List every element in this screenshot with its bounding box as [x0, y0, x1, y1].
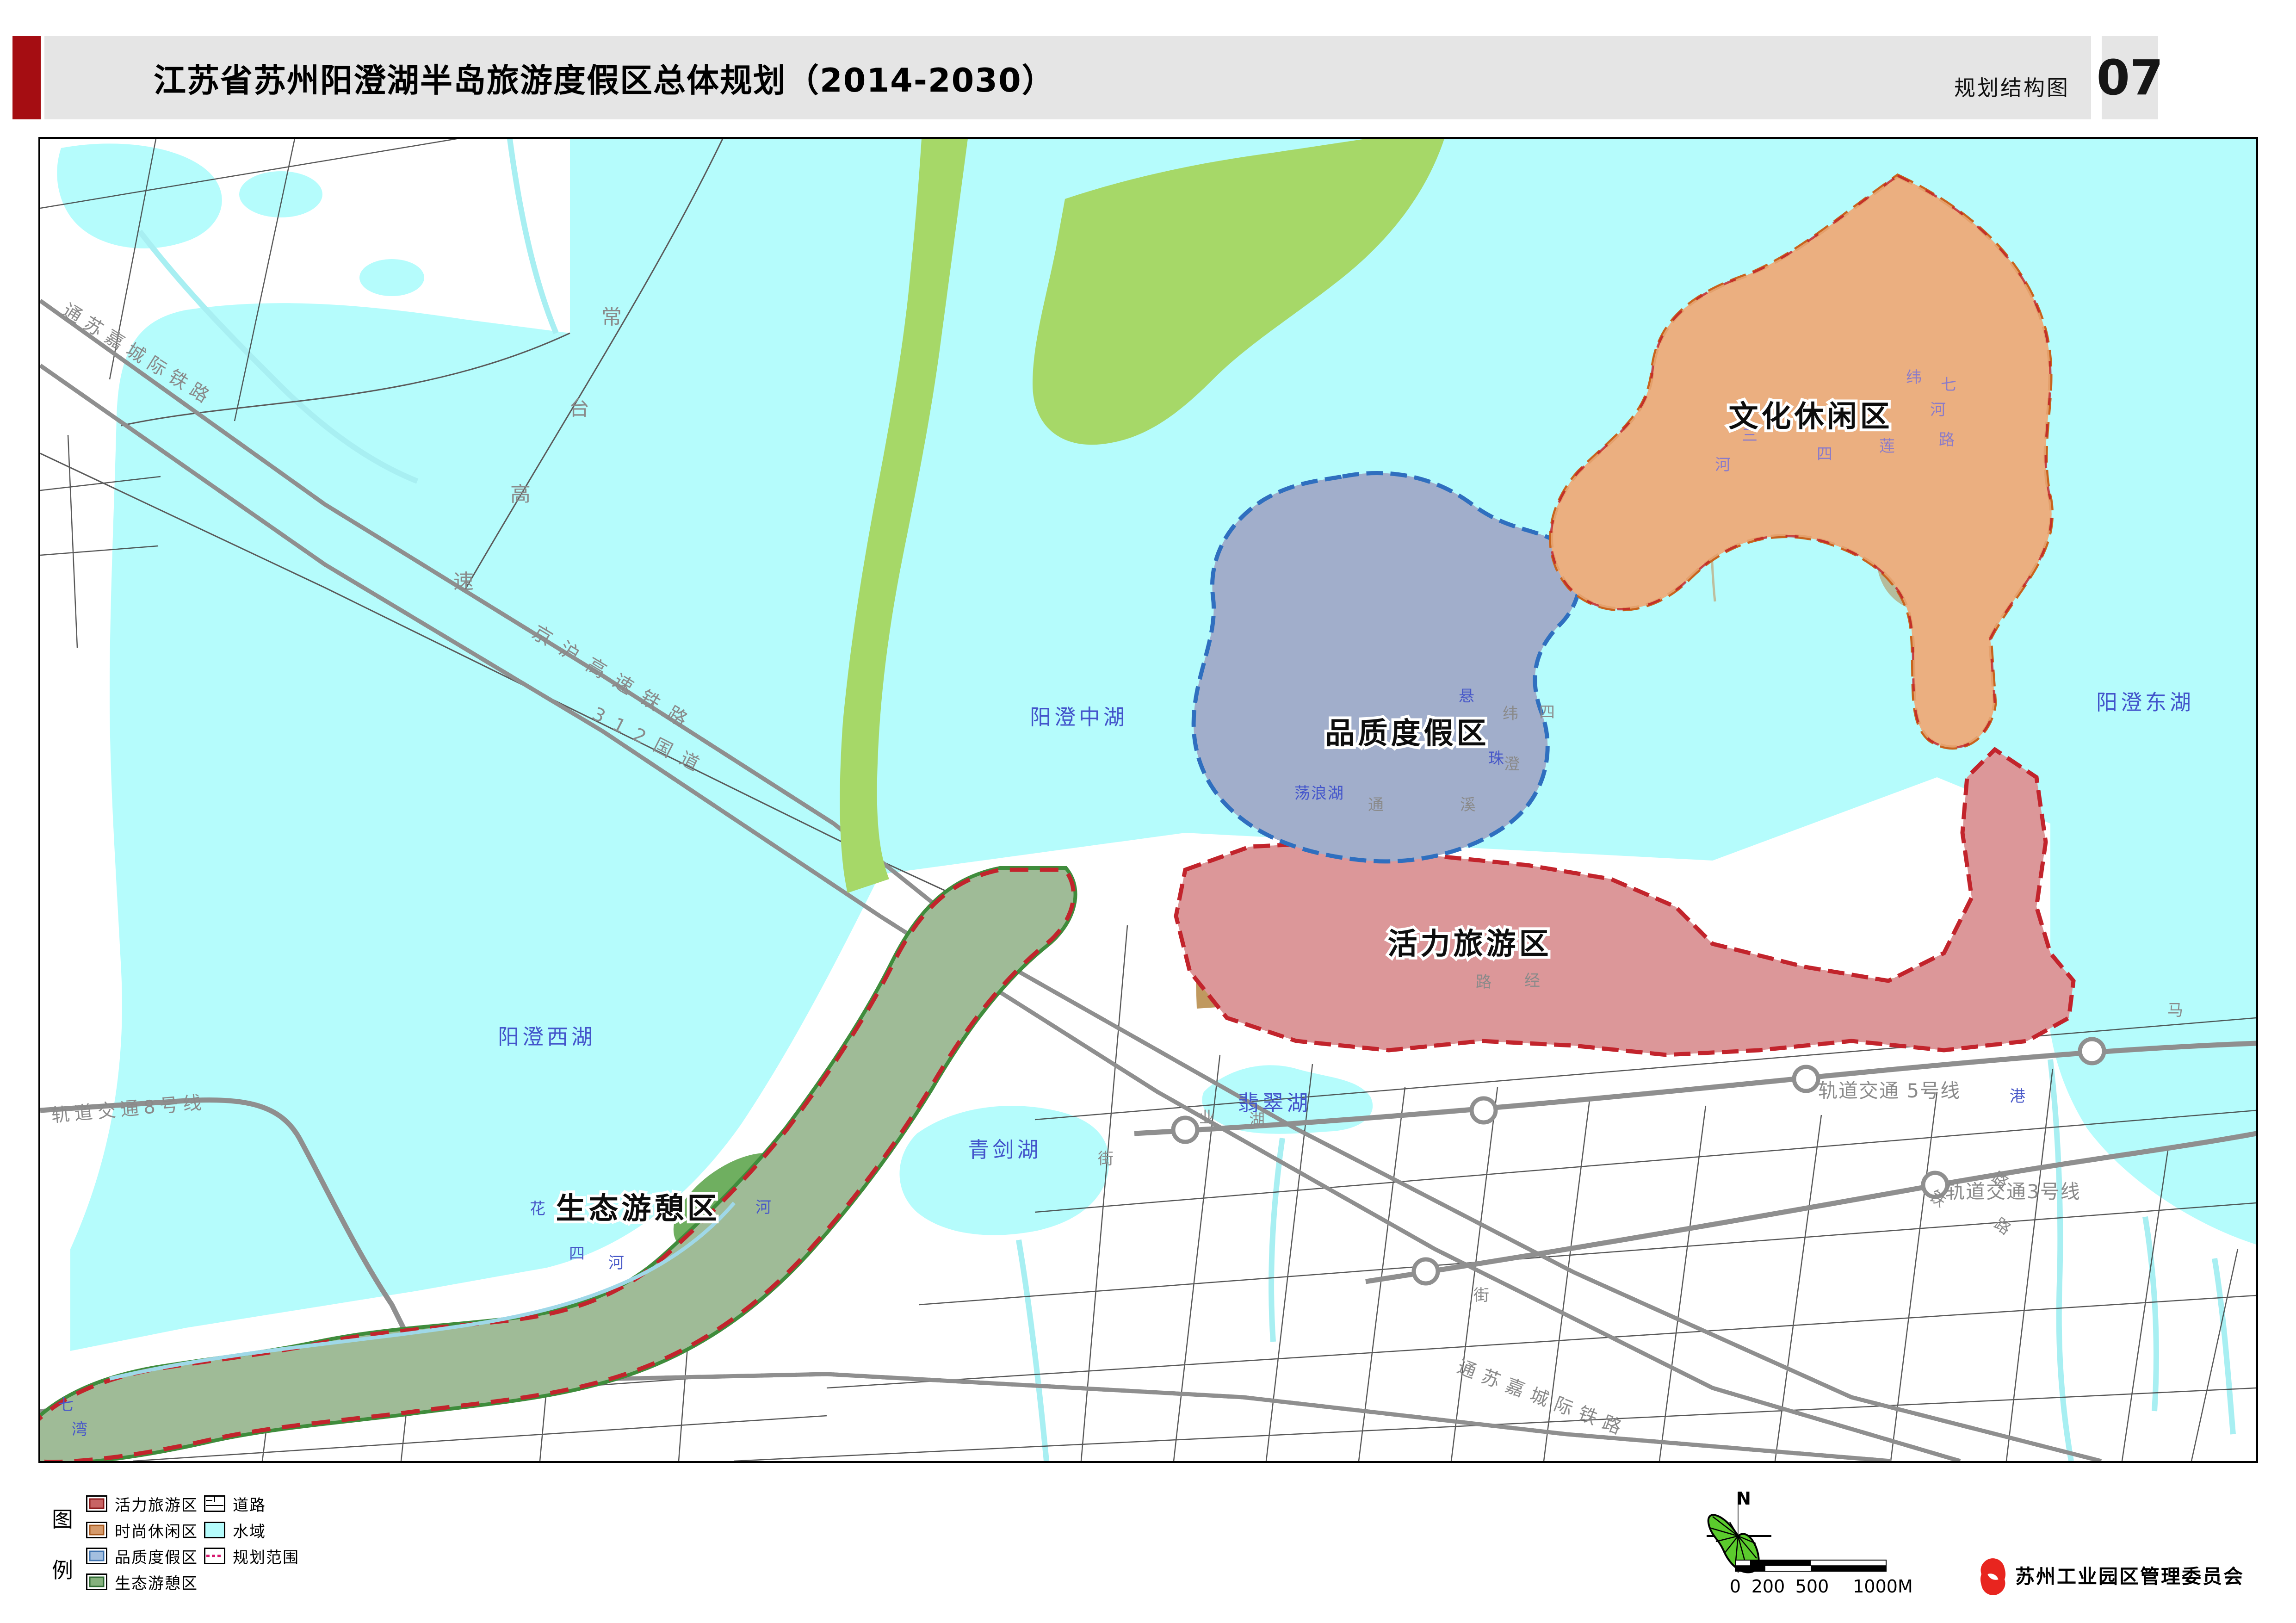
map-minor-label: 路 [1939, 431, 1955, 449]
map-minor-label: 四 [569, 1245, 585, 1263]
map-minor-label: 莲 [1879, 437, 1895, 456]
scale-label-1000m: 1000M [1853, 1576, 1913, 1597]
map-minor-label: 纬 [1503, 705, 1518, 723]
zone-quality [1194, 473, 1580, 861]
planning-map: 通苏嘉城际铁路 京沪高速铁路 312国道 轨道交通8号线 轨道交通 5号线 轨道… [40, 139, 2256, 1461]
map-minor-label: 街 [1098, 1150, 1114, 1168]
lake-label-qingjian: 青剑湖 [968, 1137, 1042, 1162]
scale-bar: 0 200 500 1000M [1730, 1560, 1913, 1597]
page-number: 07 [2097, 50, 2164, 106]
map-minor-label: 常 [601, 305, 622, 329]
map-minor-label: 速 [453, 570, 474, 594]
map-minor-label: 街 [1473, 1286, 1489, 1305]
page-number-box: 07 [2102, 36, 2158, 119]
map-minor-label: 四 [1539, 703, 1555, 722]
map-minor-label: 马 [2167, 1001, 2183, 1020]
lake-label-danglang: 荡浪湖 [1294, 784, 1344, 803]
metro-label-line5: 轨道交通 5号线 [1818, 1079, 1961, 1102]
sip-logo-icon [1980, 1558, 2005, 1595]
map-minor-label: 台 [569, 396, 589, 420]
page-title: 江苏省苏州阳澄湖半岛旅游度假区总体规划（2014-2030） [154, 55, 1055, 101]
scale-label-200: 200 [1751, 1576, 1785, 1597]
map-minor-label: 经 [1524, 972, 1540, 990]
org-name: 苏州工业园区管理委员会 [2015, 1565, 2244, 1588]
title-bar: 江苏省苏州阳澄湖半岛旅游度假区总体规划（2014-2030） 规划结构图 [44, 36, 2091, 119]
map-type-label: 规划结构图 [1954, 71, 2070, 102]
scale-label-500: 500 [1795, 1576, 1829, 1597]
map-minor-label: 四 [1817, 445, 1832, 464]
qingjian-lake [900, 1106, 1109, 1235]
metro-label-line3: 轨道交通3号线 [1945, 1180, 2081, 1203]
lake-label-west: 阳澄西湖 [498, 1024, 596, 1049]
map-minor-label: 澄 [1504, 755, 1520, 774]
map-minor-label: 河 [1930, 401, 1946, 419]
railway-label-tongsujia-south: 通苏嘉城际铁路 [1454, 1356, 1631, 1441]
map-minor-label: 湾 [72, 1420, 87, 1439]
map-minor-label: 路 [1991, 1214, 2014, 1239]
map-minor-label: 溪 [1460, 796, 1476, 814]
metro-line3 [1366, 1134, 2256, 1282]
lake-label-middle: 阳澄中湖 [1030, 705, 1128, 730]
map-minor-label: 花 [530, 1200, 545, 1218]
map-minor-label: 七 [1941, 376, 1956, 394]
map-minor-label: 路 [1476, 973, 1491, 991]
map-minor-label: 悬 [1459, 687, 1474, 706]
page: 江苏省苏州阳澄湖半岛旅游度假区总体规划（2014-2030） 规划结构图 07 [0, 0, 2296, 1623]
zone-label-culture: 文化休闲区 [1729, 400, 1893, 434]
org-logo: 苏州工业园区管理委员会 [1980, 1558, 2244, 1595]
map-minor-label: 河 [1715, 456, 1731, 474]
footer-graphics: N 0 200 500 1000M 苏州工业园区管理委员会 [0, 1462, 2296, 1623]
scale-label-0: 0 [1730, 1576, 1741, 1597]
map-minor-label: 高 [510, 483, 531, 506]
lake-label-east: 阳澄东湖 [2096, 690, 2194, 715]
map-minor-label: 业 [1199, 1109, 1215, 1127]
map-minor-label: 河 [608, 1254, 624, 1272]
zone-label-quality: 品质度假区 [1325, 717, 1490, 751]
map-frame: 通苏嘉城际铁路 京沪高速铁路 312国道 轨道交通8号线 轨道交通 5号线 轨道… [38, 137, 2258, 1463]
header-accent-block [12, 36, 41, 119]
map-minor-label: 珠 [1488, 750, 1504, 768]
map-minor-label: 河 [755, 1198, 771, 1217]
map-minor-label: 纬 [1906, 368, 1922, 387]
north-label: N [1736, 1488, 1751, 1509]
zone-label-ecology: 生态游憩区 [556, 1192, 720, 1226]
map-minor-label: 七 [58, 1396, 74, 1414]
map-minor-label: 通 [1368, 796, 1384, 814]
map-minor-label: 湖 [1249, 1111, 1265, 1129]
map-minor-label: 港 [2010, 1087, 2025, 1106]
zone-label-vitality: 活力旅游区 [1388, 927, 1552, 961]
